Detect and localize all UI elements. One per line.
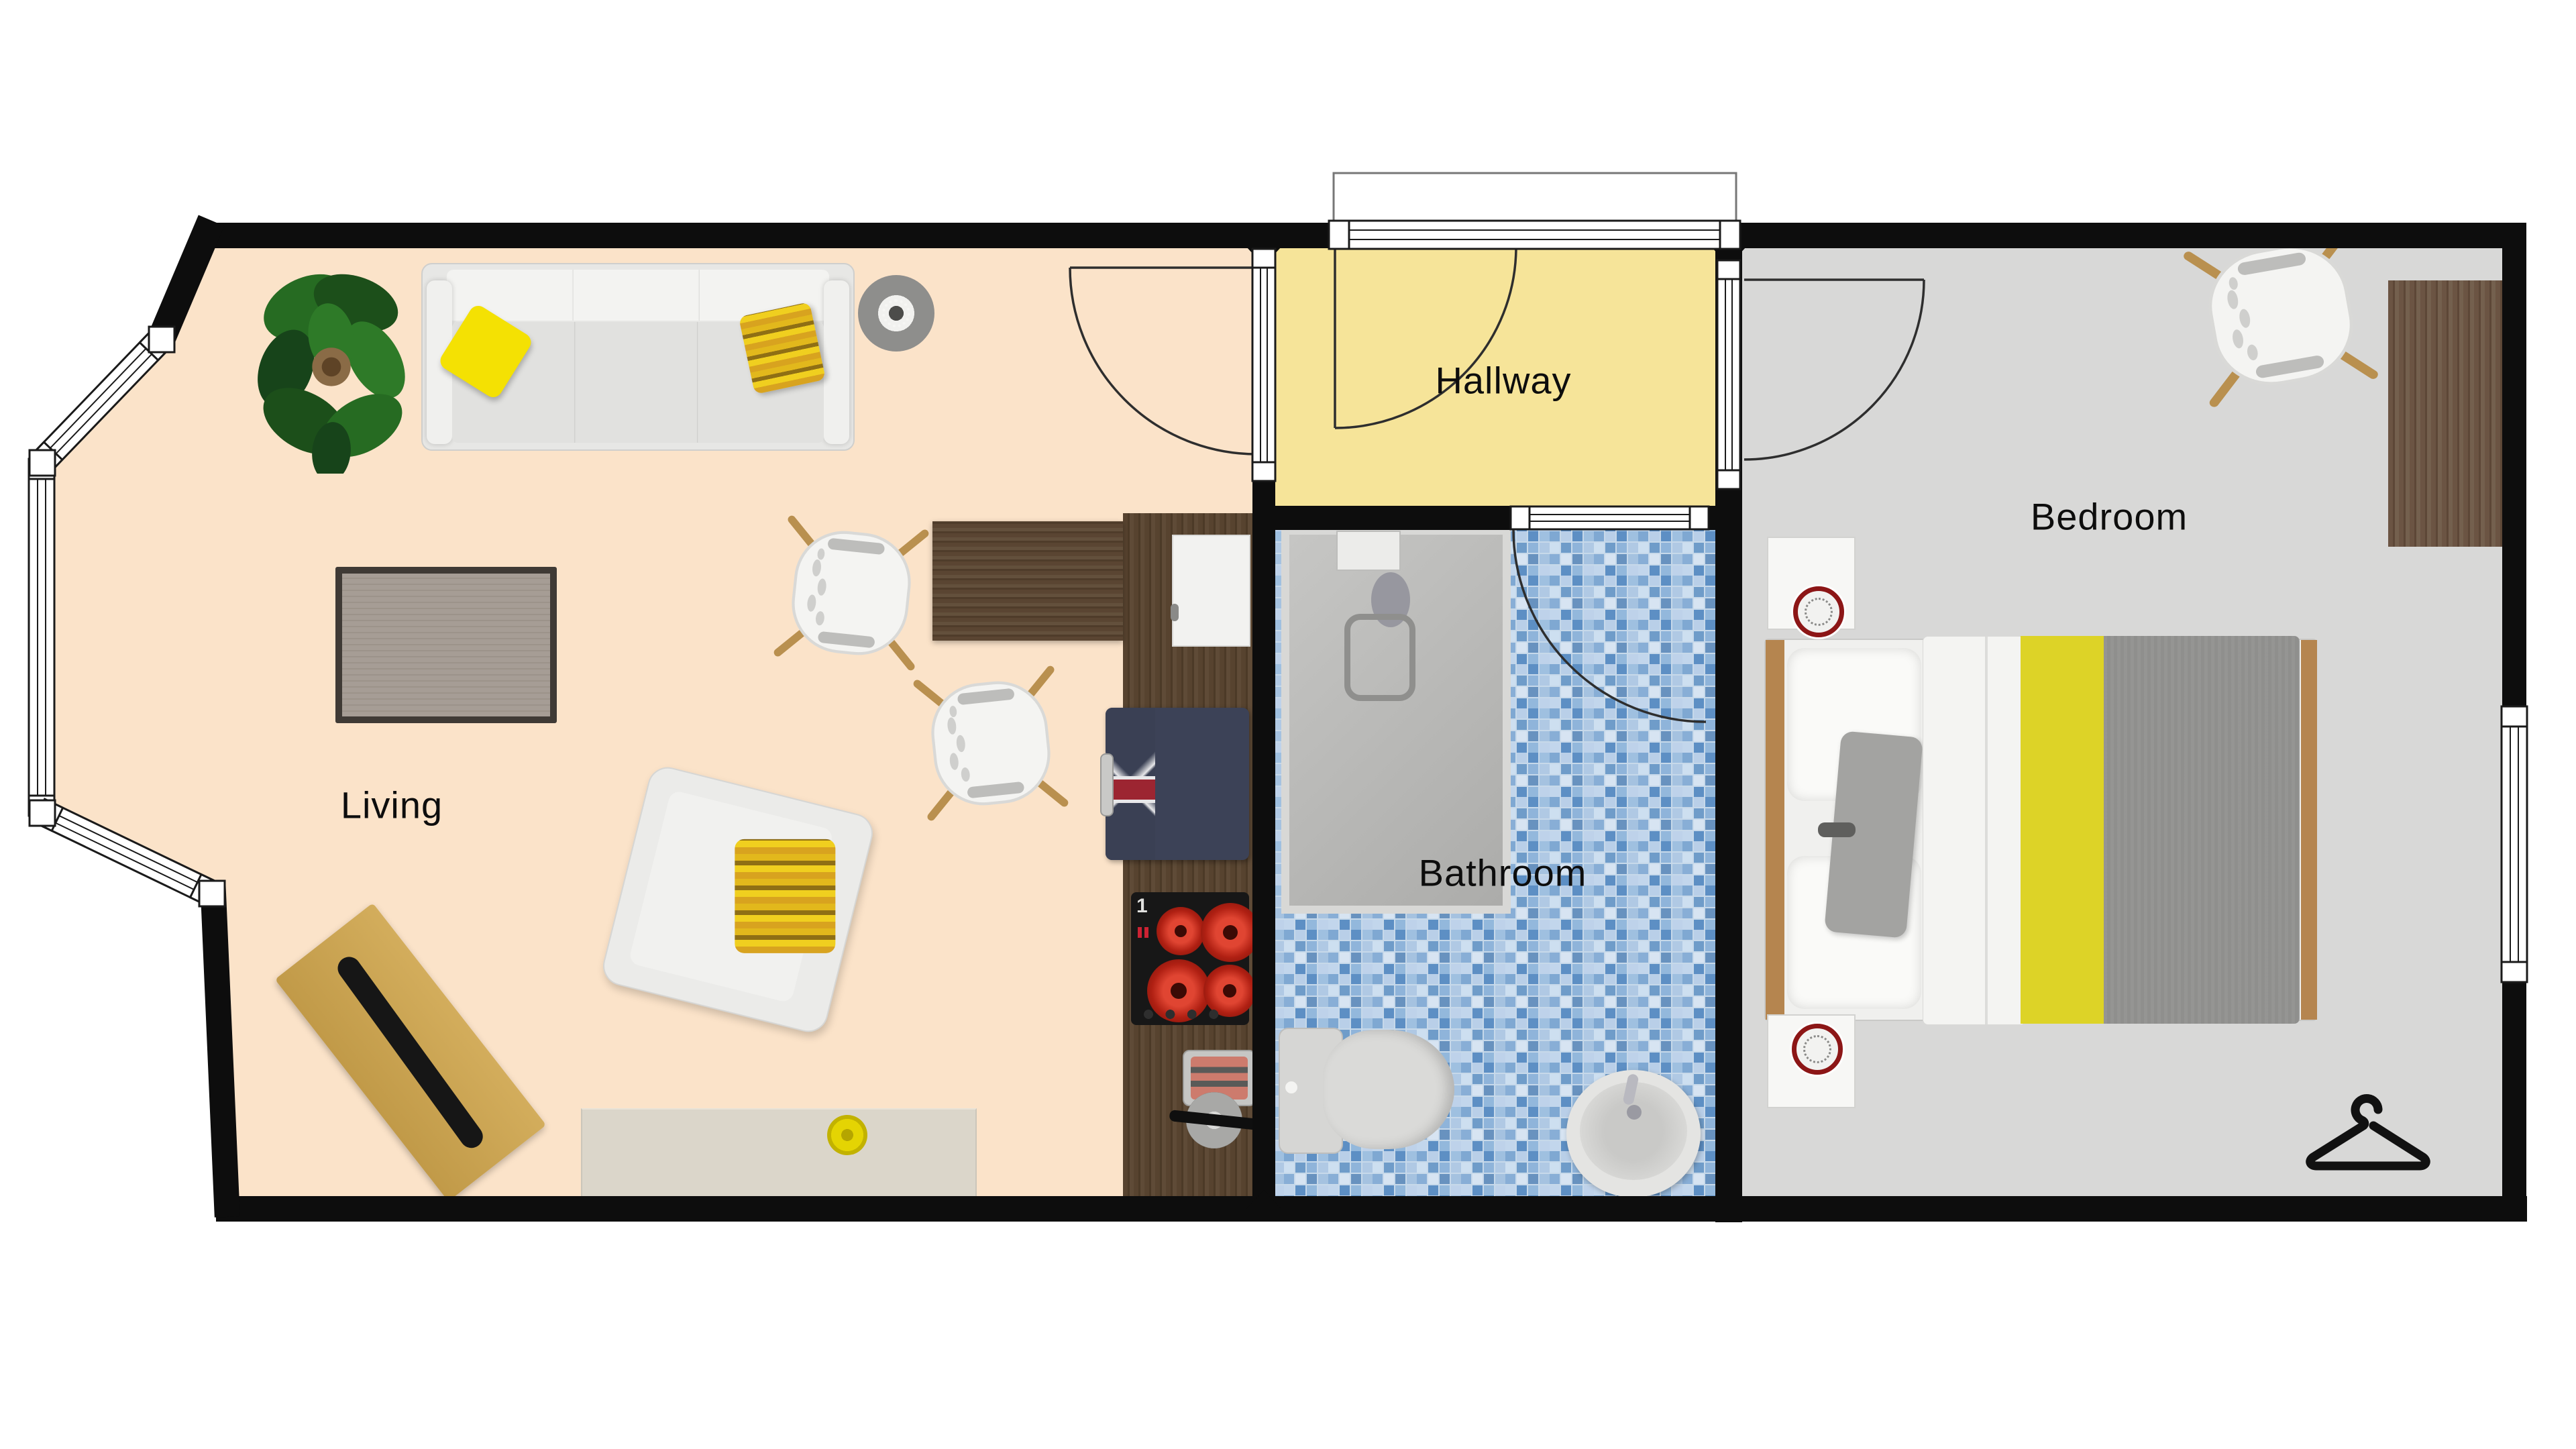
alarm-clock-icon [1792, 1024, 1843, 1075]
cooktop-indicator [1138, 927, 1148, 938]
toilet [1323, 1030, 1454, 1149]
bathroom-sink [1566, 1070, 1701, 1197]
yellow-bowl [827, 1115, 867, 1155]
ceiling-lamp-icon [858, 275, 934, 352]
sofa [421, 263, 855, 451]
dining-chair [913, 665, 1069, 822]
kitchen-sink-cabinet [1172, 535, 1250, 647]
coffee-table [335, 567, 557, 723]
potted-plant-icon [243, 255, 420, 474]
mini-fridge [1106, 708, 1249, 860]
fridge-handle [1100, 753, 1114, 816]
bed-headboard [1766, 640, 1784, 1020]
nightstand [1767, 537, 1856, 630]
room-label-bedroom: Bedroom [2031, 495, 2188, 539]
dining-table [932, 521, 1123, 641]
shower-bracket [1336, 531, 1401, 571]
tv-bench [581, 1108, 977, 1202]
cooktop: 1 [1131, 892, 1249, 1025]
bed-duvet [1923, 636, 2023, 1025]
pillow-knot [1818, 822, 1856, 837]
bed-blanket [2104, 636, 2300, 1024]
room-label-bathroom: Bathroom [1419, 851, 1587, 895]
hanger-icon [2294, 1087, 2442, 1174]
shower-hose [1344, 614, 1415, 701]
bed-footboard [2301, 640, 2317, 1020]
sofa-armrest-right [824, 280, 849, 444]
cooktop-marker: 1 [1136, 895, 1148, 918]
burner [1157, 907, 1205, 955]
toaster-lever-icon [1254, 1073, 1264, 1086]
floorplan-canvas: 1 [0, 0, 2576, 1449]
dining-chair [773, 515, 930, 672]
bed-yellow-runner [2021, 636, 2104, 1024]
armchair-zigzag-cushion [735, 839, 835, 953]
room-label-living: Living [341, 784, 443, 827]
cooktop-knobs [1140, 1009, 1221, 1020]
double-bed [1764, 639, 2317, 1021]
alarm-clock-icon [1793, 586, 1844, 637]
burner [1201, 903, 1260, 962]
bedroom-dresser [2388, 280, 2502, 547]
room-label-hallway: Hallway [1435, 359, 1571, 402]
bedroom-lounge-chair [2182, 223, 2379, 409]
entry-porch-outline [1334, 173, 1736, 223]
nightstand [1767, 1014, 1856, 1108]
